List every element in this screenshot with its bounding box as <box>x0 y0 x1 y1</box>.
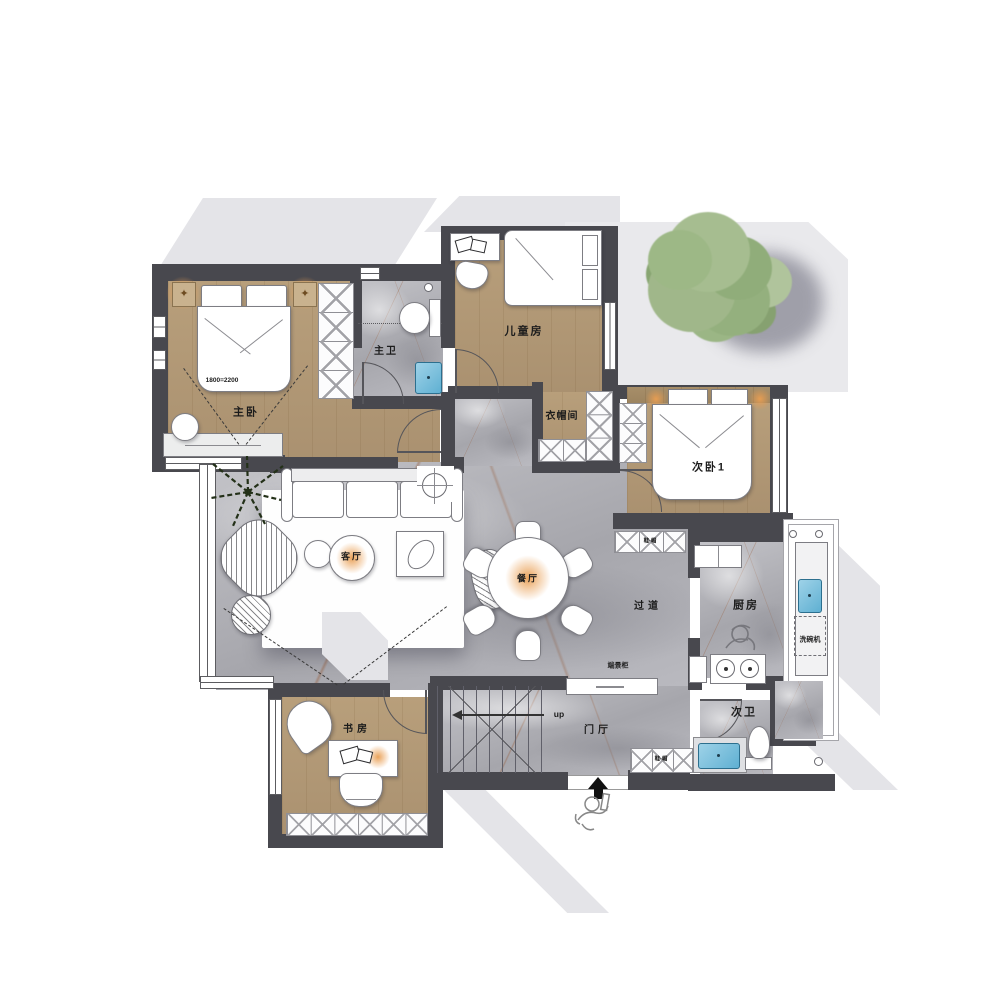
toilet-bowl <box>748 726 770 759</box>
bed-size-annotation: 1800=2200 <box>206 378 239 385</box>
cabinet-divider <box>718 546 719 567</box>
window <box>604 302 616 370</box>
lamp-glow <box>749 388 771 410</box>
burner-dot <box>724 667 728 671</box>
room-label-master-bath: 主卫 <box>374 347 398 357</box>
bed-pillow <box>582 269 598 300</box>
wall <box>628 770 690 790</box>
room-label-cloakroom: 衣帽间 <box>546 412 579 422</box>
wall <box>443 772 568 790</box>
room-label-dining-room: 餐厅 <box>517 575 539 584</box>
bath2-door-leaf <box>700 699 742 701</box>
bedroom2-wardrobe <box>619 403 647 463</box>
toilet-bowl <box>399 302 430 334</box>
window <box>269 699 282 795</box>
wall <box>613 513 793 529</box>
ornament-icon: ✦ <box>179 288 188 300</box>
burner-dot <box>748 667 752 671</box>
sink-drain-dot <box>808 594 811 597</box>
window <box>772 398 787 513</box>
shoe-cabinet-label-foyer: 鞋·帽 <box>655 757 668 763</box>
plant-icon <box>203 452 288 532</box>
rail-post <box>789 530 797 538</box>
rail-post <box>815 530 823 538</box>
staircase <box>437 686 547 773</box>
floor-corridor-upper <box>455 392 532 466</box>
window <box>153 316 166 338</box>
study-door-leaf <box>425 690 427 734</box>
cloakroom-cabinet <box>538 439 586 462</box>
room-label-foyer: 门厅 <box>584 726 612 736</box>
bedroom2-bed <box>652 404 752 500</box>
stool <box>171 413 199 441</box>
floor-laundry-top <box>775 681 823 739</box>
tree-shadow <box>705 252 823 352</box>
tree-icon <box>648 230 712 290</box>
ottoman <box>231 595 271 635</box>
kids-room-door-leaf <box>455 349 457 393</box>
room-label-bath2: 次卫 <box>731 708 757 719</box>
dining-chair <box>515 630 541 661</box>
nightstand: ✦ <box>172 282 196 307</box>
dishwasher-label: 洗碗机 <box>800 637 821 644</box>
balcony-window-bottom <box>200 676 274 689</box>
room-label-master-bedroom: 主卧 <box>233 408 259 419</box>
wall <box>268 834 443 848</box>
room-label-living-room: 客厅 <box>341 553 363 562</box>
room-label-kitchen: 厨房 <box>733 601 759 612</box>
window <box>360 267 380 280</box>
wall <box>272 683 390 697</box>
column-marker-cross <box>417 485 453 486</box>
floor-plan: ✦ ✦ <box>0 0 1000 995</box>
master-wardrobe <box>318 283 354 399</box>
console-cabinet-label: 端景柜 <box>608 663 629 670</box>
sink-drain-dot <box>427 376 430 379</box>
room-label-hallway: 过道 <box>634 602 662 612</box>
decor-band-right <box>833 540 880 716</box>
floor-drain <box>814 757 823 766</box>
bed-pillow <box>582 235 598 266</box>
nightstand: ✦ <box>293 282 317 307</box>
cloakroom-cabinet <box>586 391 613 461</box>
toilet-tank <box>429 299 441 337</box>
wall <box>688 774 835 791</box>
fridge <box>689 656 707 683</box>
room-label-bedroom2: 次卧1 <box>692 463 726 474</box>
ornament-icon: ✦ <box>300 288 309 300</box>
coffee-table-small <box>304 540 332 568</box>
cook-figure-icon <box>720 618 762 660</box>
chair-line <box>346 799 376 800</box>
wall <box>441 392 455 462</box>
window <box>153 350 166 370</box>
stairs-up-label: up <box>554 710 564 719</box>
stairs-arrow-line <box>462 714 544 716</box>
column-marker-cross <box>434 468 435 504</box>
master-bath-door-leaf <box>362 362 364 404</box>
floor-drain <box>424 283 433 292</box>
person-figure-icon <box>570 792 616 836</box>
bookshelf <box>286 813 428 836</box>
cabinet-handle <box>596 686 624 688</box>
sofa-cushion <box>346 481 398 518</box>
stairs-arrowhead <box>452 710 462 720</box>
room-label-kids-room: 儿童房 <box>505 327 544 338</box>
master-bedroom-door-leaf <box>397 451 441 453</box>
decor-band-top-left <box>157 198 437 271</box>
room-label-study: 书房 <box>343 725 371 735</box>
sink-drain-dot <box>717 754 720 757</box>
sofa-cushion <box>292 481 344 518</box>
shoe-cabinet-label-bedroom2: 鞋·帽 <box>644 539 657 545</box>
dresser-line <box>185 445 261 446</box>
